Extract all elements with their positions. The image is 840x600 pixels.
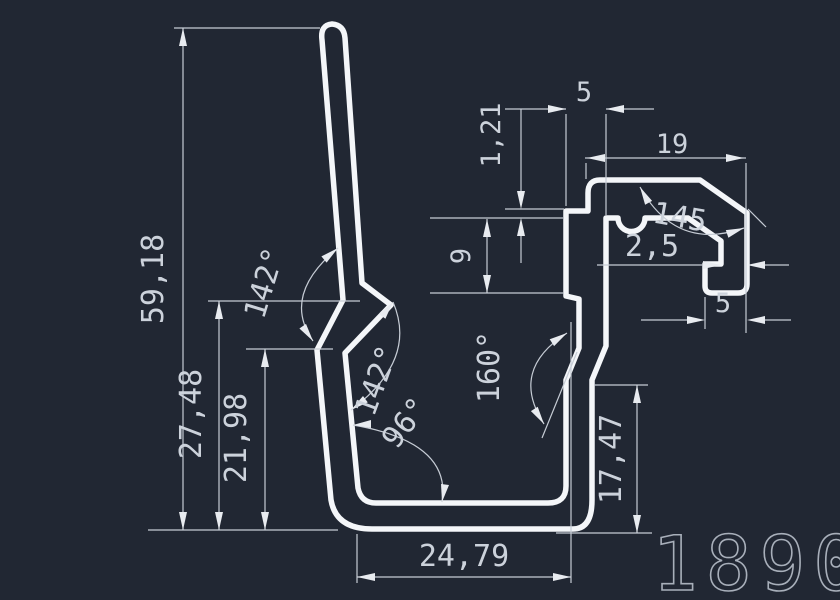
- cad-viewport: 59,18 27,48 21,98 24,79 17,47 1,21 9 5 1…: [0, 0, 840, 600]
- dimension-labels: 59,18 27,48 21,98 24,79 17,47 1,21 9 5 1…: [136, 77, 731, 574]
- dim-mid-height: 27,48: [174, 369, 209, 459]
- dim-lower-height: 21,98: [219, 393, 254, 483]
- dim-right-wall-angle: 160°: [472, 331, 507, 403]
- dim-step-height: 1,21: [476, 102, 507, 167]
- profile-outline-group: [317, 24, 747, 529]
- ext-chamfer-tail: [748, 209, 766, 227]
- ext-wall-angle-face: [542, 352, 577, 438]
- dim-blade-angle-upper: 142°: [238, 244, 293, 323]
- dim-top-width: 5: [576, 77, 592, 108]
- dim-right-height: 17,47: [594, 414, 629, 504]
- dim-total-height: 59,18: [136, 234, 171, 324]
- profile-outline: [317, 24, 747, 529]
- dim-foot-width: 5: [715, 288, 731, 319]
- dim-wall-thickness: 2,5: [625, 229, 679, 264]
- dim-bottom-width: 24,79: [419, 539, 509, 574]
- dim-pocket-height: 9: [446, 248, 477, 264]
- dim-arm-length: 19: [656, 129, 689, 160]
- part-number: 1890: [652, 519, 840, 600]
- profile-drawing: 59,18 27,48 21,98 24,79 17,47 1,21 9 5 1…: [0, 0, 840, 600]
